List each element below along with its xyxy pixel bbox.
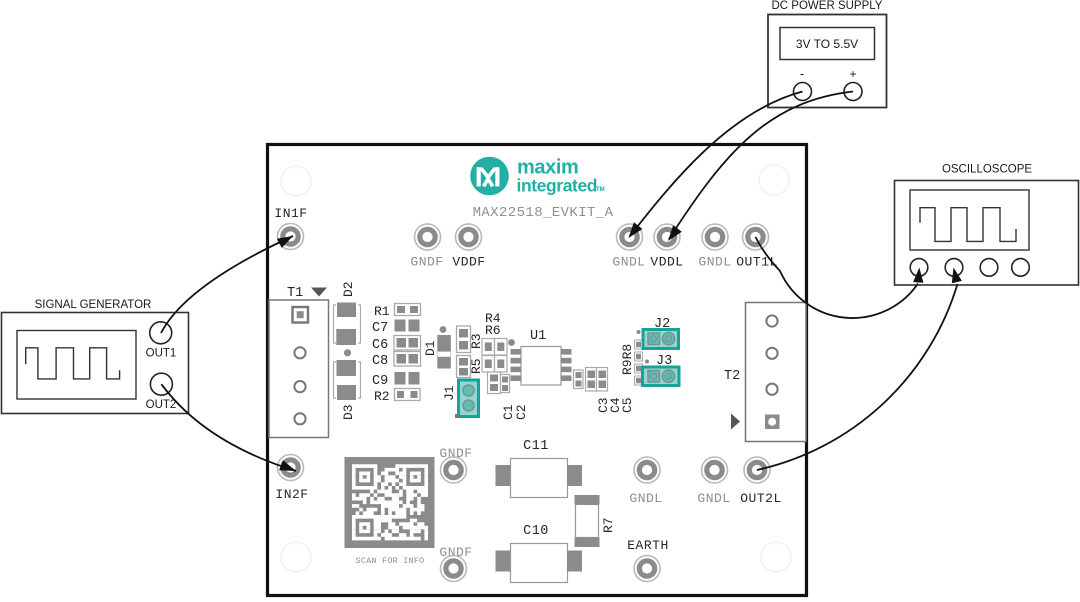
svg-text:R6: R6 <box>485 323 501 338</box>
svg-text:-: - <box>800 66 804 81</box>
svg-text:C8: C8 <box>372 354 388 369</box>
svg-text:OUT2L: OUT2L <box>740 491 782 506</box>
svg-text:R9R8: R9R8 <box>620 344 635 375</box>
svg-text:R2: R2 <box>374 389 390 404</box>
svg-text:IN2F: IN2F <box>275 487 308 502</box>
svg-text:GNDF: GNDF <box>439 446 472 461</box>
svg-text:GNDL: GNDL <box>698 255 731 270</box>
svg-text:TM: TM <box>596 187 605 193</box>
svg-text:GNDL: GNDL <box>612 255 645 270</box>
svg-text:U1: U1 <box>530 329 546 344</box>
svg-text:GNDF: GNDF <box>439 545 472 560</box>
svg-text:T2: T2 <box>724 369 740 384</box>
svg-text:D3: D3 <box>341 404 356 420</box>
svg-text:GNDL: GNDL <box>697 491 730 506</box>
svg-text:C5: C5 <box>620 397 635 413</box>
svg-text:+: + <box>849 67 856 81</box>
svg-text:C10: C10 <box>523 524 549 539</box>
svg-text:OUT1: OUT1 <box>146 348 177 360</box>
svg-text:SIGNAL GENERATOR: SIGNAL GENERATOR <box>35 299 152 311</box>
svg-text:R7: R7 <box>601 517 616 533</box>
svg-text:GNDL: GNDL <box>629 491 662 506</box>
svg-text:C11: C11 <box>523 439 549 454</box>
svg-text:C7: C7 <box>372 321 388 336</box>
svg-text:T1: T1 <box>287 286 303 301</box>
svg-text:R1: R1 <box>374 304 390 319</box>
svg-text:MAX22518_EVKIT_A: MAX22518_EVKIT_A <box>473 205 614 221</box>
svg-text:J1: J1 <box>442 385 457 401</box>
svg-text:integrated: integrated <box>517 176 598 196</box>
svg-text:VDDL: VDDL <box>650 255 683 270</box>
svg-text:OUT2: OUT2 <box>146 399 177 411</box>
svg-text:3V TO 5.5V: 3V TO 5.5V <box>796 37 858 51</box>
svg-text:IN1F: IN1F <box>274 206 307 221</box>
svg-text:GNDF: GNDF <box>410 255 443 270</box>
svg-text:OSCILLOSCOPE: OSCILLOSCOPE <box>942 164 1032 176</box>
svg-text:EARTH: EARTH <box>627 538 669 553</box>
svg-text:DC POWER SUPPLY: DC POWER SUPPLY <box>772 0 883 12</box>
svg-text:D2: D2 <box>341 281 356 297</box>
svg-text:C9: C9 <box>372 374 388 389</box>
svg-text:SCAN FOR INFO: SCAN FOR INFO <box>356 556 425 566</box>
svg-text:D1: D1 <box>423 340 438 356</box>
svg-text:VDDF: VDDF <box>452 255 485 270</box>
svg-text:C2: C2 <box>514 404 529 420</box>
svg-text:C6: C6 <box>372 338 388 353</box>
